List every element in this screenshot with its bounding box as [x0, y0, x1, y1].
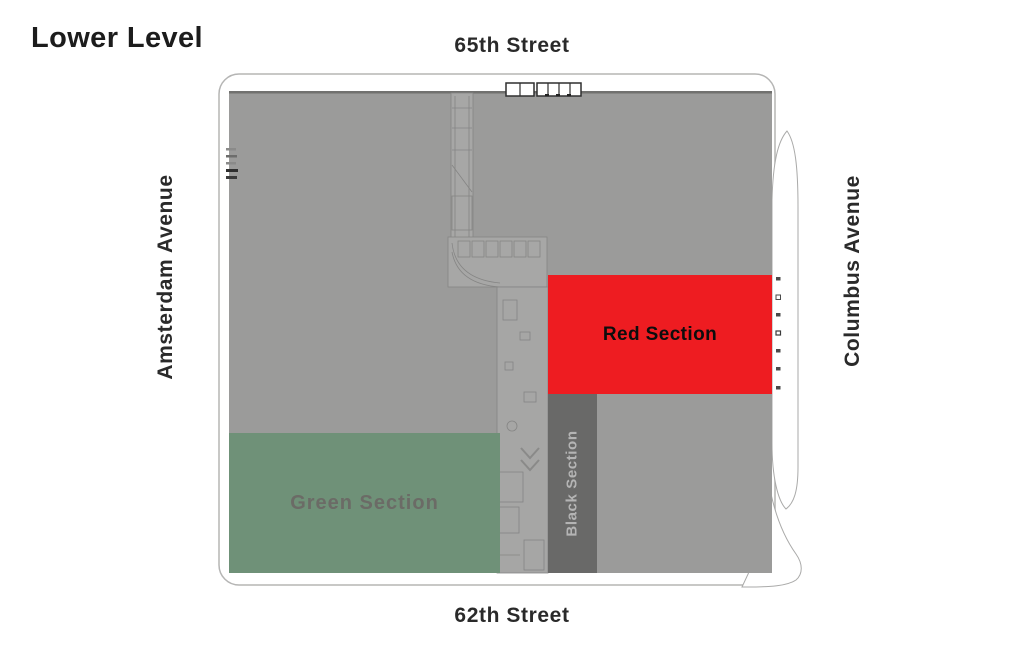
- section-black-label: Black Section: [564, 430, 581, 536]
- section-red-label: Red Section: [603, 324, 717, 346]
- street-entrance-boxes: [506, 83, 581, 97]
- street-label-65th: 65th Street: [0, 34, 1024, 58]
- section-green-label: Green Section: [290, 492, 439, 515]
- avenue-label-columbus: Columbus Avenue: [841, 175, 865, 367]
- section-black[interactable]: Black Section: [548, 394, 597, 573]
- section-green[interactable]: Green Section: [229, 433, 500, 573]
- street-label-62th: 62th Street: [0, 604, 1024, 628]
- avenue-label-amsterdam: Amsterdam Avenue: [154, 174, 178, 379]
- section-red[interactable]: Red Section: [548, 275, 772, 394]
- lower-level-venue-map: Lower Level 65th Street 62th Street Amst…: [0, 0, 1024, 663]
